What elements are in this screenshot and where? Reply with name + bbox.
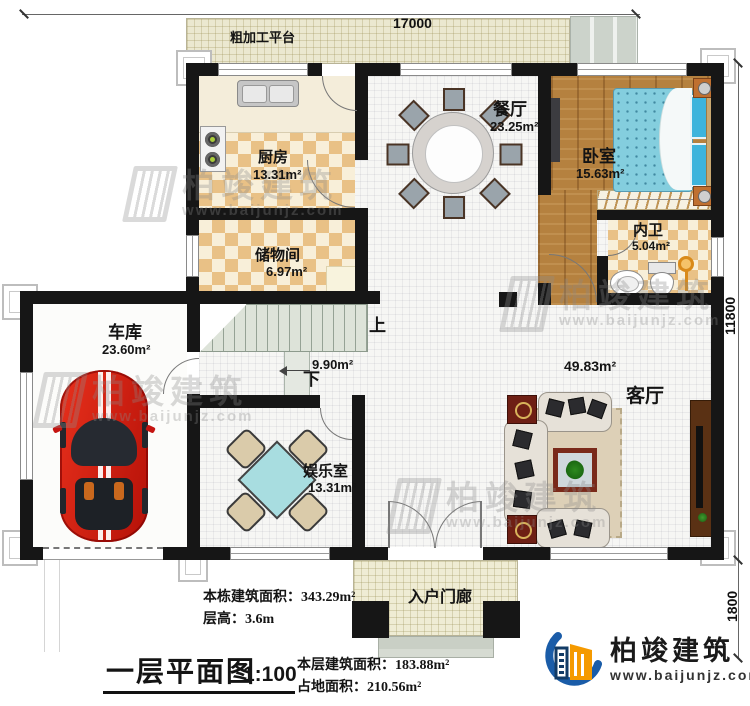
bed bbox=[613, 88, 711, 190]
window bbox=[186, 235, 199, 277]
wall bbox=[330, 547, 388, 560]
brand-logo-icon bbox=[540, 628, 602, 692]
dining-label: 餐厅 bbox=[493, 100, 527, 120]
window bbox=[218, 63, 308, 76]
dining-chair bbox=[387, 144, 410, 166]
garage-area: 23.60m² bbox=[102, 343, 150, 358]
wall bbox=[199, 208, 355, 220]
wall bbox=[187, 394, 200, 547]
platform-label: 粗加工平台 bbox=[230, 31, 295, 46]
dining-chair bbox=[443, 88, 465, 111]
sofa-top bbox=[538, 392, 612, 432]
storage-label: 储物间 bbox=[255, 247, 300, 264]
brand-name: 柏竣建筑 bbox=[610, 636, 750, 667]
plan-scale: 1:100 bbox=[243, 663, 297, 687]
wall bbox=[668, 547, 724, 560]
wall bbox=[20, 291, 380, 304]
entertainment-label: 娱乐室 bbox=[303, 463, 348, 480]
towel-stand-pole bbox=[685, 271, 688, 291]
wall bbox=[187, 395, 320, 408]
sports-car bbox=[60, 370, 148, 542]
platform-step bbox=[570, 16, 638, 64]
porch-label: 入户门廊 bbox=[408, 589, 472, 607]
kitchen-sink bbox=[237, 80, 299, 107]
stairs-arrow bbox=[279, 366, 287, 376]
kitchen-area: 13.31m² bbox=[253, 168, 301, 183]
brand-block: 柏竣建筑 www.baijunjz.com bbox=[540, 628, 750, 692]
wall bbox=[20, 291, 33, 372]
wall bbox=[308, 63, 322, 76]
window bbox=[230, 547, 330, 560]
entry-door-leaf bbox=[480, 501, 482, 548]
wardrobe-panel bbox=[551, 98, 560, 162]
wall bbox=[163, 547, 230, 560]
window bbox=[711, 237, 724, 277]
wall bbox=[711, 63, 724, 237]
tv-cabinet bbox=[690, 400, 713, 537]
wall bbox=[355, 208, 368, 304]
dining-area: 23.25m² bbox=[490, 120, 538, 135]
dining-table bbox=[412, 112, 494, 194]
wall bbox=[20, 547, 43, 560]
toilet bbox=[648, 262, 674, 296]
window bbox=[20, 372, 33, 480]
dim-right-lower-label: 1800 bbox=[724, 591, 740, 622]
porch-pillar bbox=[483, 601, 520, 638]
kitchen-stove bbox=[200, 126, 226, 172]
dimension-line-top bbox=[22, 14, 640, 15]
window bbox=[577, 63, 687, 76]
porch-steps bbox=[378, 636, 494, 658]
side-table bbox=[507, 515, 537, 544]
dining-chair bbox=[500, 144, 523, 166]
entry-door-leaf bbox=[388, 501, 390, 548]
living-label: 客厅 bbox=[626, 386, 664, 408]
coffee-table bbox=[553, 448, 597, 492]
side-table bbox=[507, 395, 537, 424]
living-area: 49.83m² bbox=[564, 358, 616, 374]
stairs-down-label: 下 bbox=[303, 370, 320, 390]
wall bbox=[483, 547, 550, 560]
stairs-up-label: 上 bbox=[369, 316, 386, 336]
wall bbox=[538, 63, 551, 195]
towel-stand bbox=[678, 256, 694, 272]
watermark-logo-icon bbox=[122, 166, 178, 222]
window bbox=[400, 63, 512, 76]
wall bbox=[186, 63, 199, 235]
note-building-area: 本栋建筑面积：343.29m² bbox=[203, 590, 355, 606]
note-floor-area: 本层建筑面积：183.88m² bbox=[297, 658, 449, 674]
wall bbox=[597, 293, 711, 305]
wall bbox=[187, 304, 200, 352]
note-footprint: 占地面积：210.56m² bbox=[297, 680, 421, 696]
dim-top-label: 17000 bbox=[393, 15, 432, 31]
title-underline bbox=[103, 691, 295, 694]
entertainment-area: 13.31m² bbox=[308, 481, 356, 496]
storage-box bbox=[326, 266, 357, 293]
brand-url: www.baijunjz.com bbox=[610, 667, 750, 683]
bedroom-area: 15.63m² bbox=[576, 167, 624, 182]
dimension-line-right bbox=[738, 63, 739, 658]
dim-right-upper-label: 11800 bbox=[722, 297, 738, 335]
bath-label: 内卫 bbox=[633, 222, 663, 239]
bedroom-label: 卧室 bbox=[582, 147, 616, 167]
storage-area: 6.97m² bbox=[266, 265, 307, 280]
driveway-lines bbox=[44, 560, 60, 652]
wall bbox=[597, 210, 711, 220]
garage-label: 车库 bbox=[108, 323, 142, 343]
floor-plan-page: { "title": {"name": "一层平面图", "scale": "1… bbox=[0, 0, 750, 706]
kitchen-label: 厨房 bbox=[258, 149, 288, 166]
dining-chair bbox=[443, 196, 465, 219]
note-floor-height: 层高：3.6m bbox=[203, 612, 274, 628]
structural-column bbox=[499, 292, 517, 307]
wall bbox=[352, 395, 365, 547]
sofa-bottom bbox=[536, 508, 610, 548]
garage-door-opening bbox=[43, 547, 163, 560]
porch-pillar bbox=[352, 601, 389, 638]
plan-title: 一层平面图 bbox=[106, 656, 256, 688]
window bbox=[550, 547, 668, 560]
bath-area: 5.04m² bbox=[632, 240, 670, 254]
